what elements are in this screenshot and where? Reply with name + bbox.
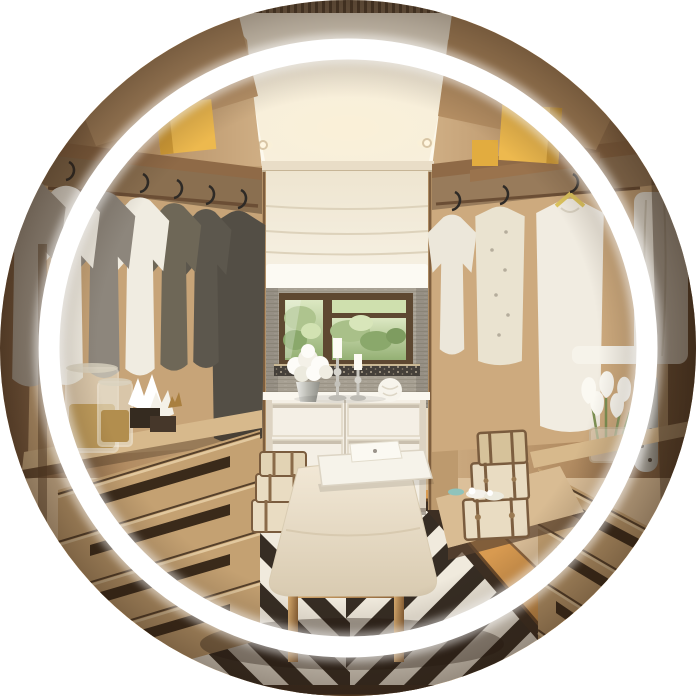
closet-scene-svg: Circular cropped photograph of a luxury … <box>0 0 696 696</box>
circular-closet-photo: Circular cropped photograph of a luxury … <box>0 0 696 696</box>
photo-circle <box>0 0 696 696</box>
vignette <box>0 0 696 696</box>
